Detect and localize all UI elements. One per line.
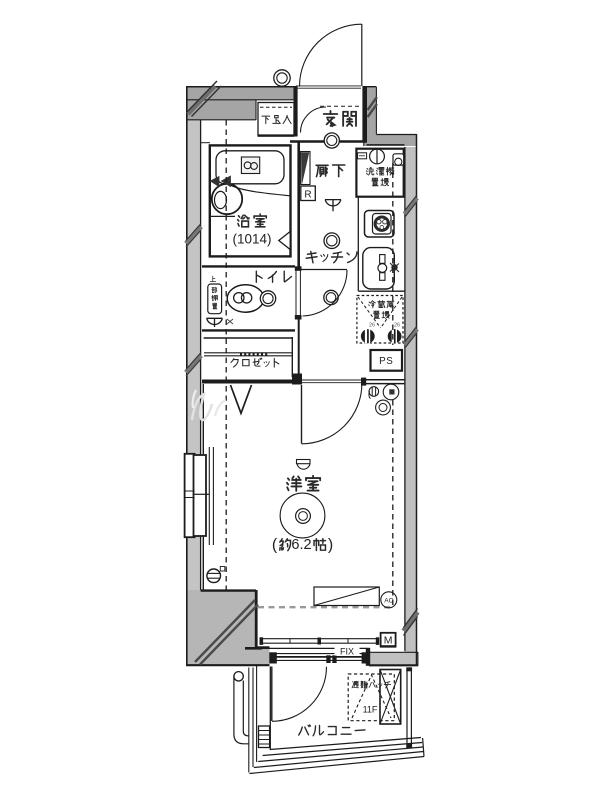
svg-text:PS: PS	[379, 356, 393, 367]
svg-text:6.2: 6.2	[291, 537, 311, 553]
svg-text:26: 26	[369, 323, 375, 329]
svg-text:(1014): (1014)	[232, 232, 271, 247]
svg-text:AC: AC	[384, 597, 393, 604]
svg-text:): )	[328, 537, 333, 554]
svg-text:FIX: FIX	[340, 646, 354, 656]
svg-text:M: M	[384, 634, 393, 646]
svg-text:R: R	[304, 190, 311, 201]
svg-text:11F: 11F	[363, 705, 378, 715]
svg-text:26: 26	[394, 323, 400, 329]
svg-text:(: (	[272, 537, 278, 554]
